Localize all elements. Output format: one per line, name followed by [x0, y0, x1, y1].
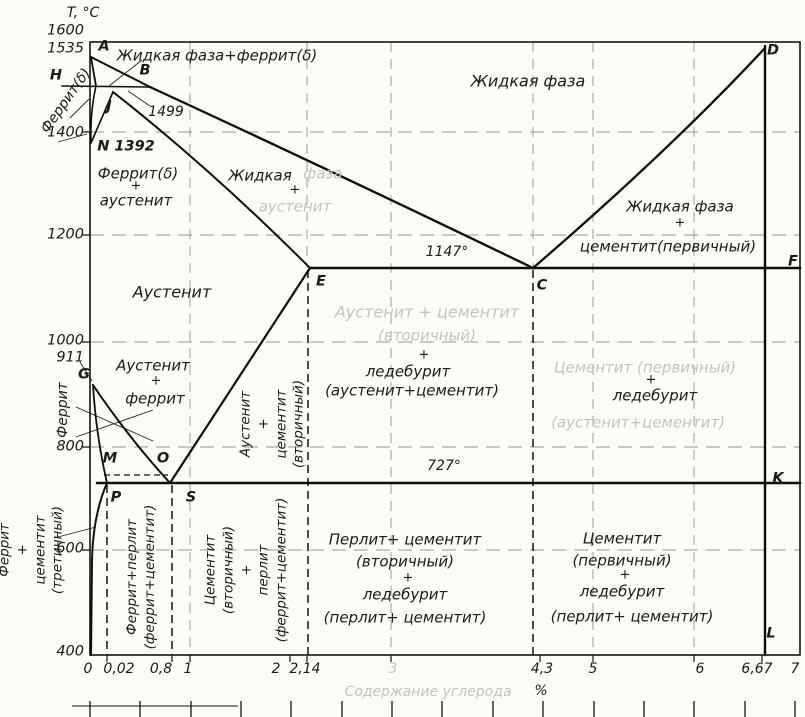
y-tick-1200: 1200 — [47, 226, 84, 245]
rotated-ferrite-cementite-tertiary-line2: цементит — [32, 506, 50, 594]
point-E: E — [316, 273, 326, 292]
x-tick-3: 3 — [389, 660, 398, 678]
region-liquid-austenite-line1a: Жидкая — [228, 166, 292, 186]
rotated-ferrite-cementite-tertiary-line1: Феррит — [0, 506, 14, 594]
rotated-ferrite-perlite-line2: (феррит+цементит) — [142, 505, 160, 650]
region-liquid-cementite-line2: цементит(первичный) — [580, 237, 756, 257]
region-austenite-ferrite-line2: феррит — [125, 389, 185, 409]
x-axis-unit: % — [534, 682, 547, 700]
rotated-cementite-secondary-line4: (феррит+цементит) — [274, 498, 292, 643]
region-liquid-cementite-plus: + — [675, 216, 686, 233]
x-tick-0-8: 0,8 — [150, 660, 172, 678]
point-K: K — [772, 470, 783, 489]
phase-diagram: T, °C 1600 1535 1400 1200 1000 911 800 6… — [0, 0, 805, 717]
x-tick-5: 5 — [589, 660, 598, 678]
rotated-ferrite-perlite-line1: Феррит+перлит — [124, 505, 142, 650]
region-perlite-mid-line4: (перлит+ цементит) — [324, 608, 487, 628]
y-axis-title: T, °C — [67, 4, 100, 22]
region-liquid-ferrite-delta: Жидкая фаза+феррит(δ) — [117, 46, 318, 66]
point-S: S — [186, 489, 196, 508]
rotated-cementite-secondary-line2: (вторичный) — [220, 498, 238, 643]
point-G: G — [78, 366, 90, 385]
region-liquid: Жидкая фаза — [471, 72, 586, 93]
region-liquid-austenite-line1b: фаза — [303, 164, 342, 184]
x-axis-caption-faded: Содержание углерода — [345, 683, 512, 701]
region-cementite-right-line1: Цементит — [583, 529, 661, 549]
x-tick-2: 2 — [272, 660, 281, 678]
region-perlite-mid-line1: Перлит+ цементит — [329, 530, 481, 550]
x-tick-6: 6 — [696, 660, 705, 678]
x-tick-7: 7 — [791, 660, 800, 678]
rotated-ferrite-perlite-label: Феррит+перлит (феррит+цементит) — [124, 505, 160, 650]
point-M: M — [103, 450, 117, 469]
rotated-austenite-cementite-line3: (вторичный) — [291, 380, 309, 468]
rotated-austenite-cementite-line1: Аустенит — [237, 380, 255, 468]
x-tick-2-14: 2,14 — [289, 660, 320, 678]
region-liquid-cementite-line1: Жидкая фаза — [626, 197, 734, 217]
rotated-cementite-secondary-perlite-label: Цементит (вторичный) + перлит (феррит+це… — [202, 498, 291, 643]
point-C: C — [537, 277, 548, 296]
point-A: A — [98, 38, 109, 57]
rotated-austenite-cementite-plus: + — [255, 380, 273, 468]
region-cementite-right-line3: ледебурит — [580, 582, 665, 602]
region-ledeburite-left-faded1: Аустенит + цементит — [335, 303, 519, 324]
point-P: P — [111, 489, 122, 508]
region-ledeburite-right-line2: ледебурит — [613, 386, 698, 406]
point-L: L — [766, 625, 775, 644]
temp-1147: 1147° — [426, 243, 469, 261]
temp-1499: 1499 — [148, 103, 184, 121]
y-tick-400: 400 — [56, 643, 84, 662]
region-ferrite-delta-austenite-line2: аустенит — [100, 191, 173, 211]
x-tick-6-67: 6,67 — [741, 660, 772, 678]
region-ledeburite-left-line4: (аустенит+цементит) — [325, 381, 499, 401]
point-F: F — [788, 253, 798, 272]
region-liquid-austenite-line2: аустенит — [259, 197, 332, 217]
region-austenite: Аустенит — [133, 283, 212, 304]
rotated-ferrite-cementite-tertiary-plus: + — [14, 506, 32, 594]
rotated-cementite-secondary-line1: Цементит — [202, 498, 220, 643]
region-ledeburite-right-faded3: (аустенит+цементит) — [551, 413, 725, 433]
y-tick-1535: 1535 — [47, 40, 84, 59]
x-tick-0-02: 0,02 — [103, 660, 134, 678]
region-perlite-mid-line2: (вторичный) — [356, 552, 454, 572]
region-perlite-mid-line3: ледебурит — [363, 585, 448, 605]
rotated-cementite-secondary-plus: + — [238, 498, 256, 643]
rotated-austenite-cementite-line2: цементит — [273, 380, 291, 468]
x-tick-0: 0 — [84, 660, 93, 678]
x-tick-4-3: 4,3 — [531, 660, 553, 678]
point-H: H — [50, 67, 62, 86]
point-J: J — [106, 98, 111, 117]
region-ledeburite-left-line3: ледебурит — [366, 362, 451, 382]
region-austenite-ferrite-plus: + — [151, 374, 162, 391]
rotated-ferrite-label: Феррит — [54, 382, 72, 438]
rotated-austenite-cementite-label: Аустенит + цементит (вторичный) — [237, 380, 308, 468]
region-ledeburite-left-faded2: (вторичный) — [378, 326, 476, 346]
y-tick-1600: 1600 — [47, 22, 84, 41]
point-O: O — [157, 450, 169, 469]
region-cementite-right-line4: (перлит+ цементит) — [551, 607, 714, 627]
y-tick-800: 800 — [56, 438, 84, 457]
rotated-ferrite-cementite-tertiary-line3: (третичный) — [50, 506, 68, 594]
rotated-ferrite-cementite-tertiary-label: Феррит + цементит (третичный) — [0, 506, 68, 594]
point-N-1392: N 1392 — [97, 138, 155, 157]
point-D: D — [767, 42, 779, 61]
x-tick-1: 1 — [184, 660, 193, 678]
rotated-cementite-secondary-line3: перлит — [256, 498, 274, 643]
temp-727: 727° — [427, 457, 461, 475]
